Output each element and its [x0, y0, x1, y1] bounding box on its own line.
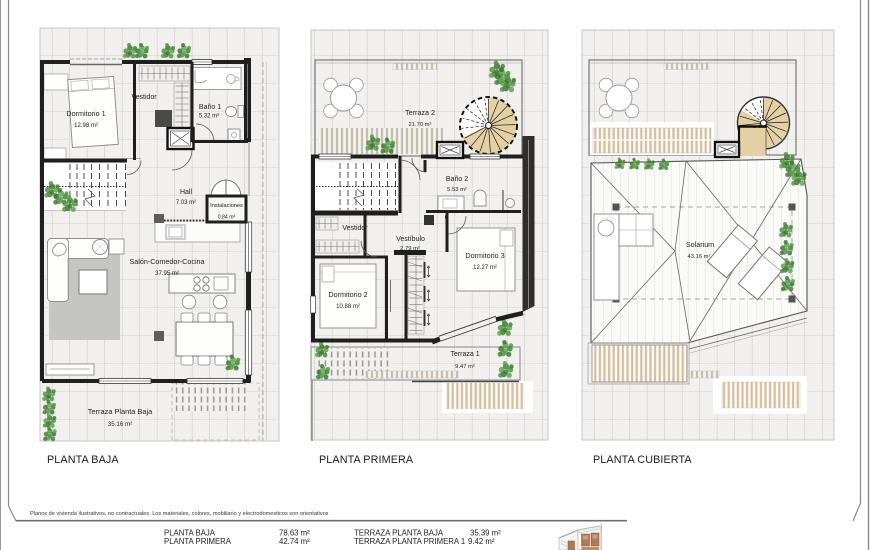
- svg-text:35.16 m²: 35.16 m²: [108, 421, 132, 428]
- svg-text:21.70 m²: 21.70 m²: [409, 122, 432, 128]
- svg-text:Dormitorio 3: Dormitorio 3: [465, 251, 504, 260]
- svg-text:Baño 1: Baño 1: [199, 104, 221, 111]
- svg-text:Terraza Planta Baja: Terraza Planta Baja: [88, 407, 153, 416]
- svg-text:12.98 m²: 12.98 m²: [74, 123, 98, 129]
- svg-text:37.95 m²: 37.95 m²: [155, 271, 179, 277]
- svg-text:Dormitorio 2: Dormitorio 2: [328, 290, 367, 299]
- svg-text:Instalaciones: Instalaciones: [210, 203, 243, 209]
- svg-text:43.16 m²: 43.16 m²: [688, 254, 711, 260]
- svg-text:PLANTA BAJA: PLANTA BAJA: [47, 454, 119, 466]
- svg-text:42.74 m²: 42.74 m²: [279, 537, 310, 546]
- svg-text:Solarium: Solarium: [686, 240, 714, 249]
- svg-text:Salón-Comedor-Cocina: Salón-Comedor-Cocina: [129, 257, 204, 266]
- svg-text:10.88 m²: 10.88 m²: [336, 304, 360, 310]
- svg-text:Baño 2: Baño 2: [446, 176, 468, 183]
- svg-text:Vestíbulo: Vestíbulo: [396, 236, 425, 243]
- svg-text:7.03 m²: 7.03 m²: [176, 200, 196, 206]
- svg-text:9.42 m²: 9.42 m²: [468, 537, 495, 546]
- svg-text:2.79 m²: 2.79 m²: [400, 246, 420, 252]
- svg-text:Dormitorio 1: Dormitorio 1: [66, 109, 105, 118]
- svg-text:5.53 m²: 5.53 m²: [447, 187, 467, 193]
- svg-text:0.84 m²: 0.84 m²: [218, 215, 236, 221]
- svg-text:Planos de vivienda ilustrativo: Planos de vivienda ilustrativos, no cont…: [30, 511, 329, 517]
- svg-text:PLANTA CUBIERTA: PLANTA CUBIERTA: [593, 454, 692, 466]
- svg-text:Terraza 1: Terraza 1: [450, 351, 479, 358]
- svg-text:12.27 m²: 12.27 m²: [473, 265, 497, 271]
- svg-text:5.32 m²: 5.32 m²: [199, 114, 219, 120]
- svg-text:Hall: Hall: [180, 189, 193, 196]
- svg-text:Terraza 2: Terraza 2: [405, 108, 435, 117]
- svg-text:Vestidor: Vestidor: [131, 94, 157, 101]
- svg-text:PLANTA PRIMERA: PLANTA PRIMERA: [164, 537, 232, 546]
- svg-text:9.47 m²: 9.47 m²: [455, 364, 475, 370]
- svg-text:TERRAZA PLANTA PRIMERA 1: TERRAZA PLANTA PRIMERA 1: [354, 537, 465, 546]
- svg-text:PLANTA PRIMERA: PLANTA PRIMERA: [319, 454, 414, 466]
- svg-text:Vestidor: Vestidor: [342, 225, 368, 232]
